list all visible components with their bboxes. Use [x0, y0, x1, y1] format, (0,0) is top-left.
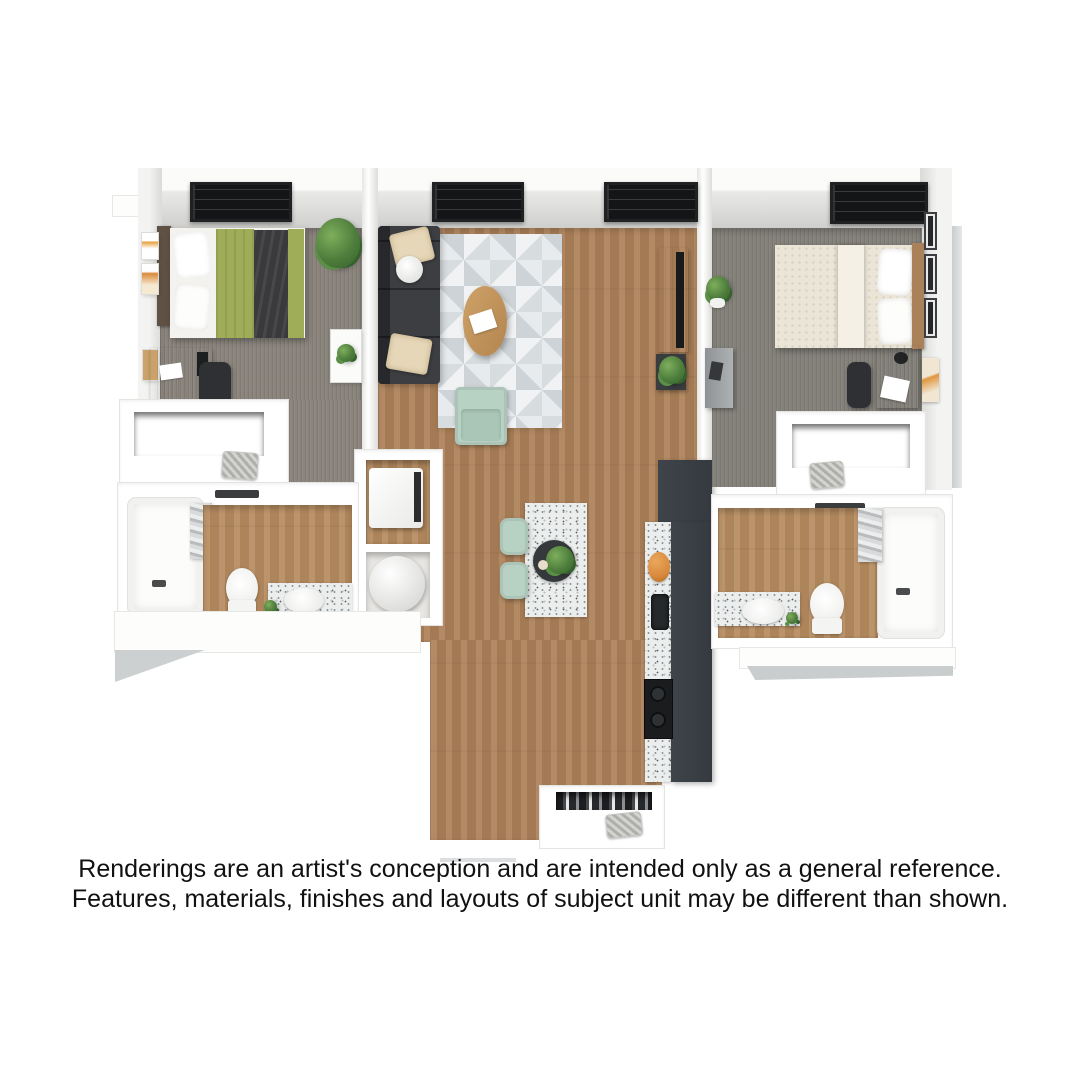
basket-icon: [221, 451, 259, 480]
floor-plan-page: Renderings are an artist's conception an…: [0, 0, 1080, 1080]
plant-small-icon: [337, 344, 355, 362]
desk-camera: [894, 352, 908, 364]
tray-plate: [538, 560, 548, 570]
bedroom-left-carpet-ext: [277, 400, 362, 483]
plant-icon: [316, 218, 360, 268]
wall-bevel-bottom-left: [115, 650, 205, 682]
wall-shadow-right: [952, 226, 962, 488]
bed-pillow: [876, 297, 913, 345]
toilet-tank: [812, 618, 842, 634]
wall-divider-left: [362, 168, 378, 485]
disclaimer-line-1: Renderings are an artist's conception an…: [0, 854, 1080, 884]
bedroom-right-carpet-ext: [712, 410, 777, 487]
stove-burner-icon: [650, 686, 666, 702]
wall-art: [142, 233, 158, 259]
basket-icon: [809, 461, 845, 490]
disclaimer-line-2: Features, materials, finishes and layout…: [0, 884, 1080, 914]
floor-plan-rendering: [0, 0, 1080, 1080]
plant-icon: [659, 356, 685, 384]
bar-stool: [500, 518, 528, 555]
entry-closet-clothes: [556, 792, 652, 810]
plant-icon: [546, 546, 574, 574]
vanity-sink: [742, 598, 784, 624]
wall-art: [142, 264, 158, 294]
laundry-basket-icon: [605, 811, 643, 839]
accent-chair-seat: [461, 409, 501, 441]
wall-bevel-bottom-right: [747, 666, 953, 680]
wall-divider-right: [697, 168, 712, 495]
wall-art: [924, 212, 937, 250]
kitchen-tall-cabinet: [658, 460, 712, 524]
bed-headboard: [912, 243, 924, 349]
window-living-2-icon: [604, 182, 698, 222]
washer-control-panel: [414, 472, 421, 522]
disclaimer-text: Renderings are an artist's conception an…: [0, 854, 1080, 914]
closet-right-clothes: [792, 424, 910, 468]
kitchen-cabinet-run: [671, 522, 712, 782]
fruit-bowl-icon: [648, 552, 670, 582]
bed-right-fold: [838, 245, 864, 348]
bed-throw-dark: [254, 230, 288, 338]
wall-slab-bottom-left: [115, 612, 420, 652]
water-heater-icon: [369, 556, 425, 612]
bed-headboard: [157, 226, 171, 326]
tv-icon: [676, 252, 684, 348]
plant-small-icon: [786, 612, 798, 624]
leaning-art: [922, 358, 939, 402]
kitchen-sink: [651, 594, 669, 630]
window-living-1-icon: [432, 182, 524, 222]
desk-chair: [847, 362, 871, 408]
bathtub: [878, 508, 944, 638]
window-bedroom-left-icon: [190, 182, 292, 222]
plant-pot: [710, 298, 725, 308]
bed-blanket-green-edge: [288, 229, 304, 338]
sofa-pillow: [385, 333, 433, 376]
bed-pillow: [172, 283, 212, 332]
vanity-sink: [284, 588, 324, 613]
wall-art: [924, 298, 937, 338]
stove-burner-icon: [650, 712, 666, 728]
wall-art: [924, 254, 937, 294]
shower-fixture-icon: [152, 580, 166, 587]
vanity-light-icon: [215, 490, 259, 498]
bar-stool: [500, 562, 528, 599]
bed-pillow: [172, 230, 213, 280]
shower-curtain: [858, 508, 882, 562]
shower-fixture-icon: [896, 588, 910, 595]
wall-slab-bottom-right: [740, 648, 955, 668]
closet-left-clothes: [134, 412, 264, 456]
window-bedroom-right-icon: [830, 182, 928, 224]
bed-blanket-green: [216, 229, 254, 338]
bed-pillow: [876, 248, 913, 296]
round-side-table: [396, 256, 423, 283]
wall-step-top-left: [113, 196, 141, 216]
desk-paper: [159, 363, 183, 381]
